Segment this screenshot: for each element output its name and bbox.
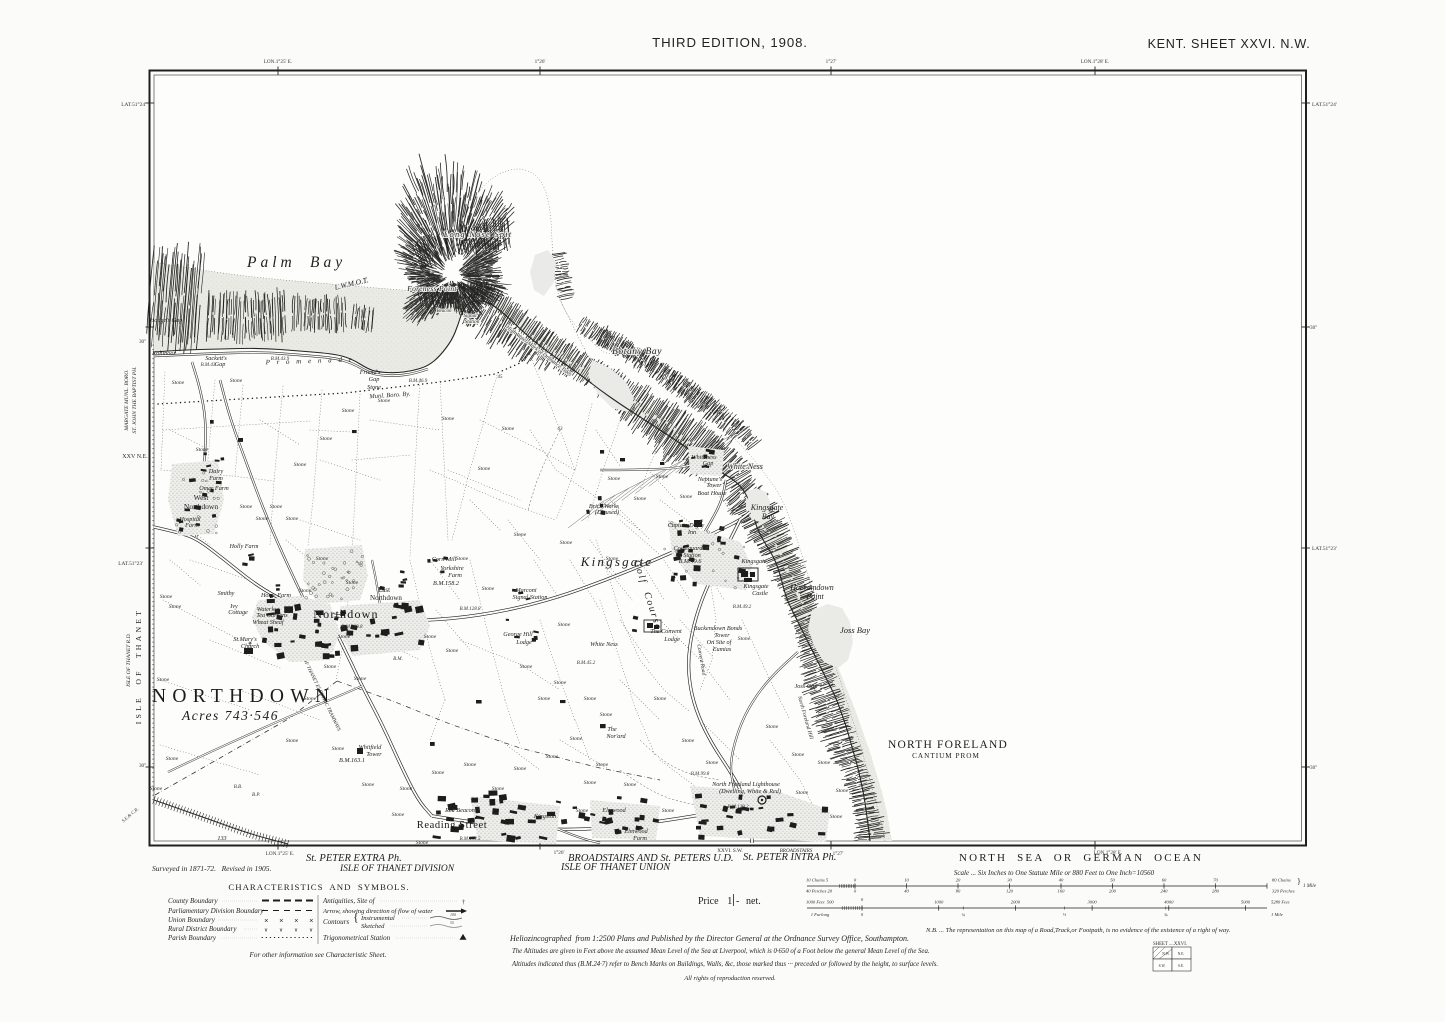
svg-text:Stone: Stone: [538, 696, 551, 702]
svg-text:Station: Station: [465, 319, 480, 325]
svg-text:THIRD EDITION, 1908.: THIRD EDITION, 1908.: [652, 35, 808, 50]
svg-text:1°26': 1°26': [535, 58, 546, 65]
svg-text:Stone: Stone: [270, 504, 283, 510]
svg-text:North Foreland Lighthouse: North Foreland Lighthouse: [711, 781, 780, 788]
svg-text:Stone: Stone: [738, 636, 751, 642]
svg-text:1000: 1000: [934, 900, 944, 905]
svg-text:On Site of: On Site of: [707, 639, 733, 646]
svg-text:Whitfield: Whitfield: [359, 744, 383, 751]
svg-text:Farm: Farm: [632, 835, 647, 842]
svg-text:Stone: Stone: [150, 786, 163, 792]
svg-text:Stone: Stone: [456, 556, 469, 562]
svg-text:Stone: Stone: [634, 496, 647, 502]
svg-text:Stone: Stone: [304, 696, 317, 702]
svg-text:133: 133: [217, 835, 226, 842]
svg-text:Dairy: Dairy: [208, 468, 224, 475]
svg-text:B.M.45.2: B.M.45.2: [577, 661, 596, 666]
svg-text:XXV N.E.: XXV N.E.: [122, 454, 148, 460]
svg-text:Stone: Stone: [299, 588, 312, 594]
svg-text:B.M.129.2: B.M.129.2: [728, 805, 749, 810]
svg-text:ISLE OF THANET DIVISION: ISLE OF THANET DIVISION: [339, 864, 455, 874]
svg-text:½: ½: [1063, 912, 1067, 917]
svg-text:∨: ∨: [294, 928, 298, 934]
svg-text:Stone: Stone: [608, 476, 621, 482]
svg-text:63: 63: [558, 427, 564, 432]
svg-text:Farm: Farm: [447, 572, 462, 579]
svg-text:Northdown: Northdown: [313, 607, 378, 621]
svg-text:4000: 4000: [1164, 900, 1174, 905]
svg-text:B.M.154.5: B.M.154.5: [460, 837, 481, 842]
svg-text:St.Mary's: St.Mary's: [233, 636, 257, 643]
svg-text:Stone: Stone: [680, 494, 693, 500]
svg-text:LON.1°25' E.: LON.1°25' E.: [266, 850, 295, 857]
svg-text:Stone: Stone: [169, 604, 182, 610]
svg-text:45: 45: [498, 375, 504, 380]
svg-text:80 Chains: 80 Chains: [1272, 878, 1291, 883]
svg-text:30'': 30'': [1310, 325, 1317, 331]
svg-text:Parish Boundary: Parish Boundary: [167, 934, 217, 942]
svg-text:280: 280: [1212, 889, 1220, 894]
svg-text:ST. JOHN THE BAPTIST PH.: ST. JOHN THE BAPTIST PH.: [132, 366, 138, 433]
svg-text:30: 30: [1007, 878, 1012, 883]
svg-text:Tower: Tower: [714, 632, 730, 639]
svg-text:5000: 5000: [1241, 900, 1251, 905]
svg-text:{: {: [353, 910, 359, 924]
svg-text:(Dwelling, White & Red): (Dwelling, White & Red): [719, 788, 781, 795]
svg-text:Arrow, showing direction of fl: Arrow, showing direction of flow of wate…: [322, 908, 433, 915]
svg-text:Corn Mill: Corn Mill: [432, 556, 457, 563]
svg-text:Lodge: Lodge: [515, 639, 532, 646]
svg-text:LON.1°25' E.: LON.1°25' E.: [264, 58, 293, 65]
svg-text:Rural District Boundary: Rural District Boundary: [167, 925, 237, 933]
svg-text:Stone: Stone: [332, 746, 345, 752]
svg-text:Tower: Tower: [366, 751, 382, 758]
svg-text:Boat House: Boat House: [697, 490, 726, 497]
svg-text:S.E.: S.E.: [1178, 964, 1184, 968]
svg-text:Kingston: Kingston: [533, 813, 556, 820]
svg-text:B.M.: B.M.: [393, 657, 403, 662]
svg-text:Captain Digby: Captain Digby: [668, 522, 705, 529]
svg-text:30'': 30'': [139, 763, 146, 769]
svg-text:Hodge's Gap: Hodge's Gap: [149, 317, 182, 324]
svg-text:Stone: Stone: [584, 780, 597, 786]
svg-text:B.M.46.9: B.M.46.9: [409, 379, 428, 384]
svg-text:Kingsgate: Kingsgate: [750, 503, 784, 512]
svg-text:Foreness Point: Foreness Point: [406, 284, 457, 293]
svg-text:Signal Station: Signal Station: [513, 594, 548, 601]
svg-text:∨: ∨: [279, 928, 283, 934]
svg-text:Bay: Bay: [310, 254, 346, 271]
svg-text:Stone: Stone: [570, 736, 583, 742]
svg-text:Stone: Stone: [654, 696, 667, 702]
svg-text:Northdown: Northdown: [184, 502, 218, 511]
svg-text:Cottage: Cottage: [228, 609, 248, 616]
svg-text:Hackemdown: Hackemdown: [789, 583, 834, 592]
svg-text:Stone: Stone: [367, 384, 381, 391]
svg-text:Yorkshire: Yorkshire: [440, 565, 464, 572]
svg-text:Kohinoor: Kohinoor: [151, 350, 176, 357]
svg-text:Stone: Stone: [502, 426, 515, 432]
svg-text:✕: ✕: [294, 919, 299, 925]
svg-text:Acres 743·546: Acres 743·546: [181, 708, 279, 723]
svg-text:B.M.128.8: B.M.128.8: [460, 607, 481, 612]
svg-text:Coastguard: Coastguard: [674, 545, 704, 552]
svg-text:Elmwood: Elmwood: [601, 807, 626, 814]
svg-text:Reading Street: Reading Street: [417, 820, 488, 831]
svg-text:✕: ✕: [264, 919, 269, 925]
svg-text:BROADSTAIRS: BROADSTAIRS: [780, 848, 813, 854]
svg-text:Stone: Stone: [836, 788, 849, 794]
svg-text:Stone: Stone: [424, 634, 437, 640]
svg-text:Stone: Stone: [316, 556, 329, 562]
svg-text:B.M.43.9: B.M.43.9: [271, 357, 290, 362]
svg-text:Kingsgate: Kingsgate: [742, 583, 768, 590]
svg-text:B.P.: B.P.: [252, 793, 260, 798]
svg-text:Gap: Gap: [215, 361, 226, 368]
svg-text:Stone: Stone: [706, 760, 719, 766]
svg-text:Stone: Stone: [514, 532, 527, 538]
svg-text:Heliozincographed from 1:2500: Heliozincographed from 1:2500 Plans and …: [509, 934, 909, 943]
svg-text:CANTIUM PROM: CANTIUM PROM: [912, 752, 980, 760]
svg-text:B.M.163.1: B.M.163.1: [339, 757, 365, 764]
svg-text:Stone: Stone: [324, 664, 337, 670]
svg-text:Stone: Stone: [576, 808, 589, 814]
svg-text:ISLE OF THANET UNION: ISLE OF THANET UNION: [560, 862, 671, 873]
svg-text:1: 1: [727, 895, 733, 907]
svg-text:Tea Gardens: Tea Gardens: [256, 612, 288, 619]
svg-text:Farm: Farm: [184, 522, 199, 529]
svg-text:1 Furlong: 1 Furlong: [811, 912, 830, 917]
svg-text:40 Perches 20: 40 Perches 20: [806, 889, 833, 894]
svg-text:Stone: Stone: [240, 504, 253, 510]
svg-text:net.: net.: [746, 896, 761, 907]
svg-text:For other information see Char: For other information see Characteristic…: [249, 951, 387, 959]
svg-text:Stone: Stone: [584, 696, 597, 702]
svg-text:Marconi: Marconi: [514, 587, 536, 594]
svg-text:Stone: Stone: [478, 466, 491, 472]
svg-text:Stone: Stone: [792, 752, 805, 758]
svg-text:B.B.: B.B.: [234, 785, 243, 790]
svg-text:S.W.: S.W.: [1159, 964, 1166, 968]
svg-text:Stone: Stone: [286, 738, 299, 744]
svg-text:Altitudes indicated thus (B.M.: Altitudes indicated thus (B.M.24·7) refe…: [511, 961, 938, 968]
svg-text:1°27': 1°27': [826, 58, 837, 65]
svg-text:Stone: Stone: [432, 770, 445, 776]
svg-text:Stone: Stone: [286, 516, 299, 522]
svg-text:White Ness: White Ness: [590, 641, 618, 648]
svg-text:Stone: Stone: [378, 398, 391, 404]
svg-text:✕: ✕: [279, 919, 284, 925]
svg-text:Union Boundary: Union Boundary: [168, 916, 216, 924]
svg-text:Stone: Stone: [166, 756, 179, 762]
svg-text:Church: Church: [241, 643, 259, 650]
svg-text:Stone: Stone: [796, 790, 809, 796]
svg-text:50: 50: [450, 920, 454, 925]
svg-text:Stone: Stone: [624, 782, 637, 788]
svg-text:Buckendown Bonds: Buckendown Bonds: [694, 625, 743, 632]
svg-text:Point: Point: [805, 592, 824, 601]
svg-text:Stone: Stone: [560, 540, 573, 546]
svg-text:ISLE OF THANET R.D.: ISLE OF THANET R.D.: [126, 633, 132, 688]
svg-text:✕: ✕: [309, 919, 314, 925]
svg-text:Eumias: Eumias: [712, 646, 732, 653]
svg-text:White Ness: White Ness: [727, 462, 763, 471]
svg-text:Stone: Stone: [362, 782, 375, 788]
svg-text:Stone: Stone: [554, 680, 567, 686]
svg-text:Farm: Farm: [208, 475, 223, 482]
svg-text:N.B. ... The representation on: N.B. ... The representation on this map …: [925, 927, 1231, 934]
svg-text:St. PETER EXTRA Ph.: St. PETER EXTRA Ph.: [306, 853, 402, 864]
svg-text:Stone: Stone: [682, 738, 695, 744]
svg-text:Surveyed in 1871-72. Revised: Surveyed in 1871-72. Revised in 1905.: [152, 864, 271, 873]
svg-text:Scale ... Six Inches to One St: Scale ... Six Inches to One Statute Mile…: [954, 869, 1155, 877]
svg-text:Red Beacon: Red Beacon: [444, 807, 475, 814]
svg-text:Kingsgate: Kingsgate: [740, 558, 766, 565]
svg-text:160: 160: [1058, 889, 1066, 894]
svg-text:LAT.51°24': LAT.51°24': [1312, 101, 1337, 108]
svg-text:N.E.: N.E.: [1178, 952, 1185, 956]
svg-text:Sketched: Sketched: [361, 923, 385, 930]
svg-text:(Disused): (Disused): [595, 509, 619, 516]
svg-text:2000: 2000: [1011, 900, 1021, 905]
svg-text:Smithy: Smithy: [218, 590, 235, 597]
svg-text:Stone: Stone: [416, 840, 429, 846]
svg-text:Joss Bay: Joss Bay: [840, 625, 870, 635]
svg-text:LAT.51°23': LAT.51°23': [1312, 545, 1337, 552]
svg-text:Beacon: Beacon: [437, 309, 452, 314]
svg-text:Botany Bay: Botany Bay: [612, 347, 662, 357]
svg-text:Stone: Stone: [392, 812, 405, 818]
svg-text:The Altitudes are given in Fee: The Altitudes are given in Feet above th…: [512, 948, 930, 955]
svg-text:Inn: Inn: [687, 529, 696, 536]
svg-text:SHEET ....XXVI.: SHEET ....XXVI.: [1153, 942, 1187, 947]
svg-text:Stone: Stone: [492, 786, 505, 792]
svg-text:East: East: [378, 586, 390, 594]
svg-text:Lodge: Lodge: [663, 636, 680, 643]
svg-text:}: }: [1297, 877, 1301, 886]
svg-text:-: -: [736, 896, 739, 907]
svg-text:CHARACTERISTICS AND SYMBOLS.: CHARACTERISTICS AND SYMBOLS.: [228, 882, 409, 892]
svg-text:Palm: Palm: [246, 254, 296, 271]
svg-text:The Convent: The Convent: [650, 628, 682, 635]
svg-text:Stone: Stone: [482, 586, 495, 592]
svg-text:Stone: Stone: [818, 760, 831, 766]
svg-text:The: The: [607, 726, 617, 733]
svg-text:ISLE OF THANET: ISLE OF THANET: [134, 608, 143, 724]
svg-text:Instrumental: Instrumental: [360, 915, 395, 922]
svg-text:George Hill: George Hill: [503, 631, 533, 638]
svg-text:B.M.43: B.M.43: [201, 363, 216, 368]
svg-text:XXVI. S.W.: XXVI. S.W.: [717, 848, 742, 854]
svg-text:Stone: Stone: [294, 462, 307, 468]
svg-text:Holly Farm: Holly Farm: [228, 543, 259, 550]
svg-text:NORTH SEA OR GERMAN OCEAN: NORTH SEA OR GERMAN OCEAN: [959, 852, 1203, 864]
svg-text:70: 70: [1213, 878, 1218, 883]
svg-text:200: 200: [1109, 889, 1117, 894]
svg-text:LAT.51°24': LAT.51°24': [121, 101, 146, 108]
svg-text:Stone: Stone: [596, 762, 609, 768]
svg-text:B.M.49.6: B.M.49.6: [679, 558, 703, 565]
svg-text:Stone: Stone: [662, 808, 675, 814]
svg-text:Price: Price: [698, 896, 719, 907]
svg-text:30'': 30'': [139, 339, 146, 345]
svg-text:Stone: Stone: [354, 676, 367, 682]
svg-text:Stone: Stone: [446, 648, 459, 654]
svg-text:5280 Feet: 5280 Feet: [1271, 900, 1290, 905]
svg-text:Stone: Stone: [514, 766, 527, 772]
svg-text:1°26': 1°26': [554, 849, 565, 856]
svg-text:60: 60: [1162, 878, 1167, 883]
svg-text:Stone: Stone: [230, 378, 243, 384]
svg-text:Stone: Stone: [157, 677, 170, 683]
svg-text:Stone: Stone: [766, 724, 779, 730]
svg-text:Stone: Stone: [442, 416, 455, 422]
svg-text:West: West: [194, 493, 210, 502]
svg-text:All rights of reproduction res: All rights of reproduction reserved.: [683, 975, 776, 982]
svg-text:10: 10: [904, 878, 909, 883]
svg-text:∨: ∨: [264, 928, 268, 934]
svg-text:LON.1°28' E.: LON.1°28' E.: [1081, 58, 1110, 65]
svg-text:Stone: Stone: [606, 556, 619, 562]
svg-text:100: 100: [450, 912, 456, 917]
svg-text:MARGATE MUNL. BORO.: MARGATE MUNL. BORO.: [124, 369, 130, 431]
svg-text:Stone: Stone: [600, 712, 613, 718]
svg-text:¼: ¼: [961, 912, 965, 917]
svg-text:Nor'ard: Nor'ard: [605, 733, 626, 740]
svg-text:50: 50: [1110, 878, 1115, 883]
svg-text:Stone: Stone: [256, 516, 269, 522]
svg-text:Stone: Stone: [546, 754, 559, 760]
svg-text:B.M.158.2: B.M.158.2: [433, 580, 459, 587]
svg-text:Bay: Bay: [762, 512, 775, 521]
svg-text:Castle: Castle: [752, 590, 768, 597]
svg-text:120: 120: [1006, 889, 1014, 894]
svg-text:40: 40: [1059, 878, 1064, 883]
svg-text:Northdown: Northdown: [370, 594, 402, 602]
svg-text:Stone: Stone: [338, 634, 351, 640]
svg-text:80: 80: [956, 889, 961, 894]
svg-text:County Boundary: County Boundary: [168, 897, 218, 905]
svg-text:Omer Farm: Omer Farm: [199, 485, 229, 492]
svg-text:Home Farm: Home Farm: [260, 592, 292, 599]
svg-text:Contours: Contours: [323, 918, 349, 926]
svg-text:Stone: Stone: [342, 408, 355, 414]
svg-text:Gap: Gap: [703, 460, 714, 467]
svg-text:1 Mile: 1 Mile: [1303, 884, 1317, 889]
svg-text:Stone: Stone: [558, 622, 571, 628]
svg-text:B.M.129.8: B.M.129.8: [342, 625, 363, 630]
svg-text:Stone: Stone: [320, 436, 333, 442]
svg-text:¾: ¾: [1164, 912, 1168, 917]
svg-text:Wheat Sheaf: Wheat Sheaf: [252, 619, 284, 626]
svg-text:Stone: Stone: [464, 762, 477, 768]
svg-text:B.M.99.8: B.M.99.8: [691, 772, 710, 777]
svg-text:Stone: Stone: [160, 594, 173, 600]
svg-text:Joss Gap: Joss Gap: [795, 683, 818, 690]
svg-text:Trigonometrical Station: Trigonometrical Station: [323, 934, 391, 942]
svg-text:320 Perches: 320 Perches: [1272, 889, 1295, 894]
svg-text:Parliamentary Division Boundar: Parliamentary Division Boundary: [167, 907, 265, 915]
svg-text:Stone: Stone: [346, 580, 359, 586]
svg-text:LAT.51°23': LAT.51°23': [118, 560, 143, 567]
svg-text:Stone: Stone: [520, 664, 533, 670]
svg-text:Stone: Stone: [830, 814, 843, 820]
svg-text:20: 20: [956, 878, 961, 883]
svg-text:240: 240: [1161, 889, 1169, 894]
svg-text:Stone: Stone: [400, 786, 413, 792]
svg-text:40: 40: [904, 889, 909, 894]
svg-text:10 Chains 5: 10 Chains 5: [806, 878, 829, 883]
svg-text:Stone: Stone: [196, 447, 209, 453]
svg-text:Antiquities, Site of: Antiquities, Site of: [322, 897, 376, 905]
svg-text:∨: ∨: [309, 928, 313, 934]
svg-text:Long Nose Spit: Long Nose Spit: [443, 229, 513, 239]
svg-text:1 Mile: 1 Mile: [1271, 912, 1283, 917]
svg-text:B.M.49.2: B.M.49.2: [733, 605, 752, 610]
svg-text:KENT. SHEET XXVI. N.W.: KENT. SHEET XXVI. N.W.: [1148, 37, 1311, 51]
svg-text:Tower: Tower: [706, 482, 722, 489]
svg-text:Stone: Stone: [172, 380, 185, 386]
svg-text:Elmwood: Elmwood: [623, 828, 648, 835]
svg-text:Friend's: Friend's: [359, 369, 381, 376]
svg-text:NORTH FORELAND: NORTH FORELAND: [888, 739, 1008, 751]
svg-text:Stone: Stone: [656, 474, 669, 480]
svg-text:30'': 30'': [1310, 765, 1317, 771]
svg-text:1000 Feet 500: 1000 Feet 500: [806, 900, 834, 905]
svg-text:N.W.: N.W.: [1162, 952, 1170, 956]
svg-text:Gap: Gap: [369, 376, 380, 383]
svg-text:3000: 3000: [1088, 900, 1098, 905]
